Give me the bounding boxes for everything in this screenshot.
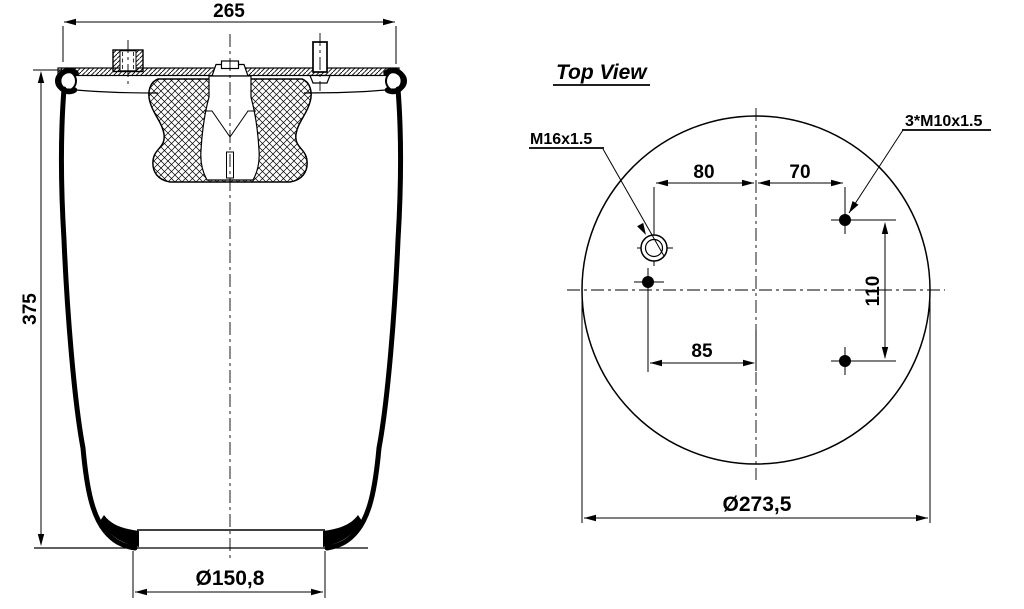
dim-base-diameter: Ø150,8 [133, 551, 325, 598]
bolt-pattern-label-text: 3*M10x1.5 [905, 113, 982, 130]
dim-80: 80 [654, 162, 754, 231]
mounting-boss-left [113, 40, 143, 84]
dim-70-text: 70 [789, 162, 810, 183]
top-view: Top View [529, 61, 991, 523]
label-fitting: M16x1.5 [529, 131, 664, 256]
side-view: 265 375 Ø150,8 [20, 1, 406, 598]
dim-70: 70 [758, 162, 843, 186]
mounting-stud-right [310, 33, 330, 91]
stud-hole-left [634, 268, 664, 372]
dim-height-375: 375 [20, 70, 62, 546]
dim-plate-diameter-text: Ø273,5 [723, 493, 792, 516]
label-bolt-pattern: 3*M10x1.5 [849, 113, 991, 213]
dim-110: 110 [863, 222, 888, 359]
dim-base-diameter-text: Ø150,8 [196, 567, 265, 590]
technical-drawing-air-spring: 265 375 Ø150,8 Top View [0, 0, 1024, 609]
fitting-label-text: M16x1.5 [530, 131, 592, 148]
dim-85: 85 [650, 330, 756, 371]
dim-85-text: 85 [691, 341, 713, 362]
dim-width-text: 265 [213, 1, 245, 22]
dim-110-text: 110 [863, 276, 884, 307]
dim-height-text: 375 [20, 293, 41, 325]
dim-80-text: 80 [693, 162, 714, 183]
top-view-title: Top View [556, 61, 648, 84]
drawing-svg: 265 375 Ø150,8 Top View [0, 0, 1024, 609]
air-fitting-m16 [637, 230, 673, 266]
